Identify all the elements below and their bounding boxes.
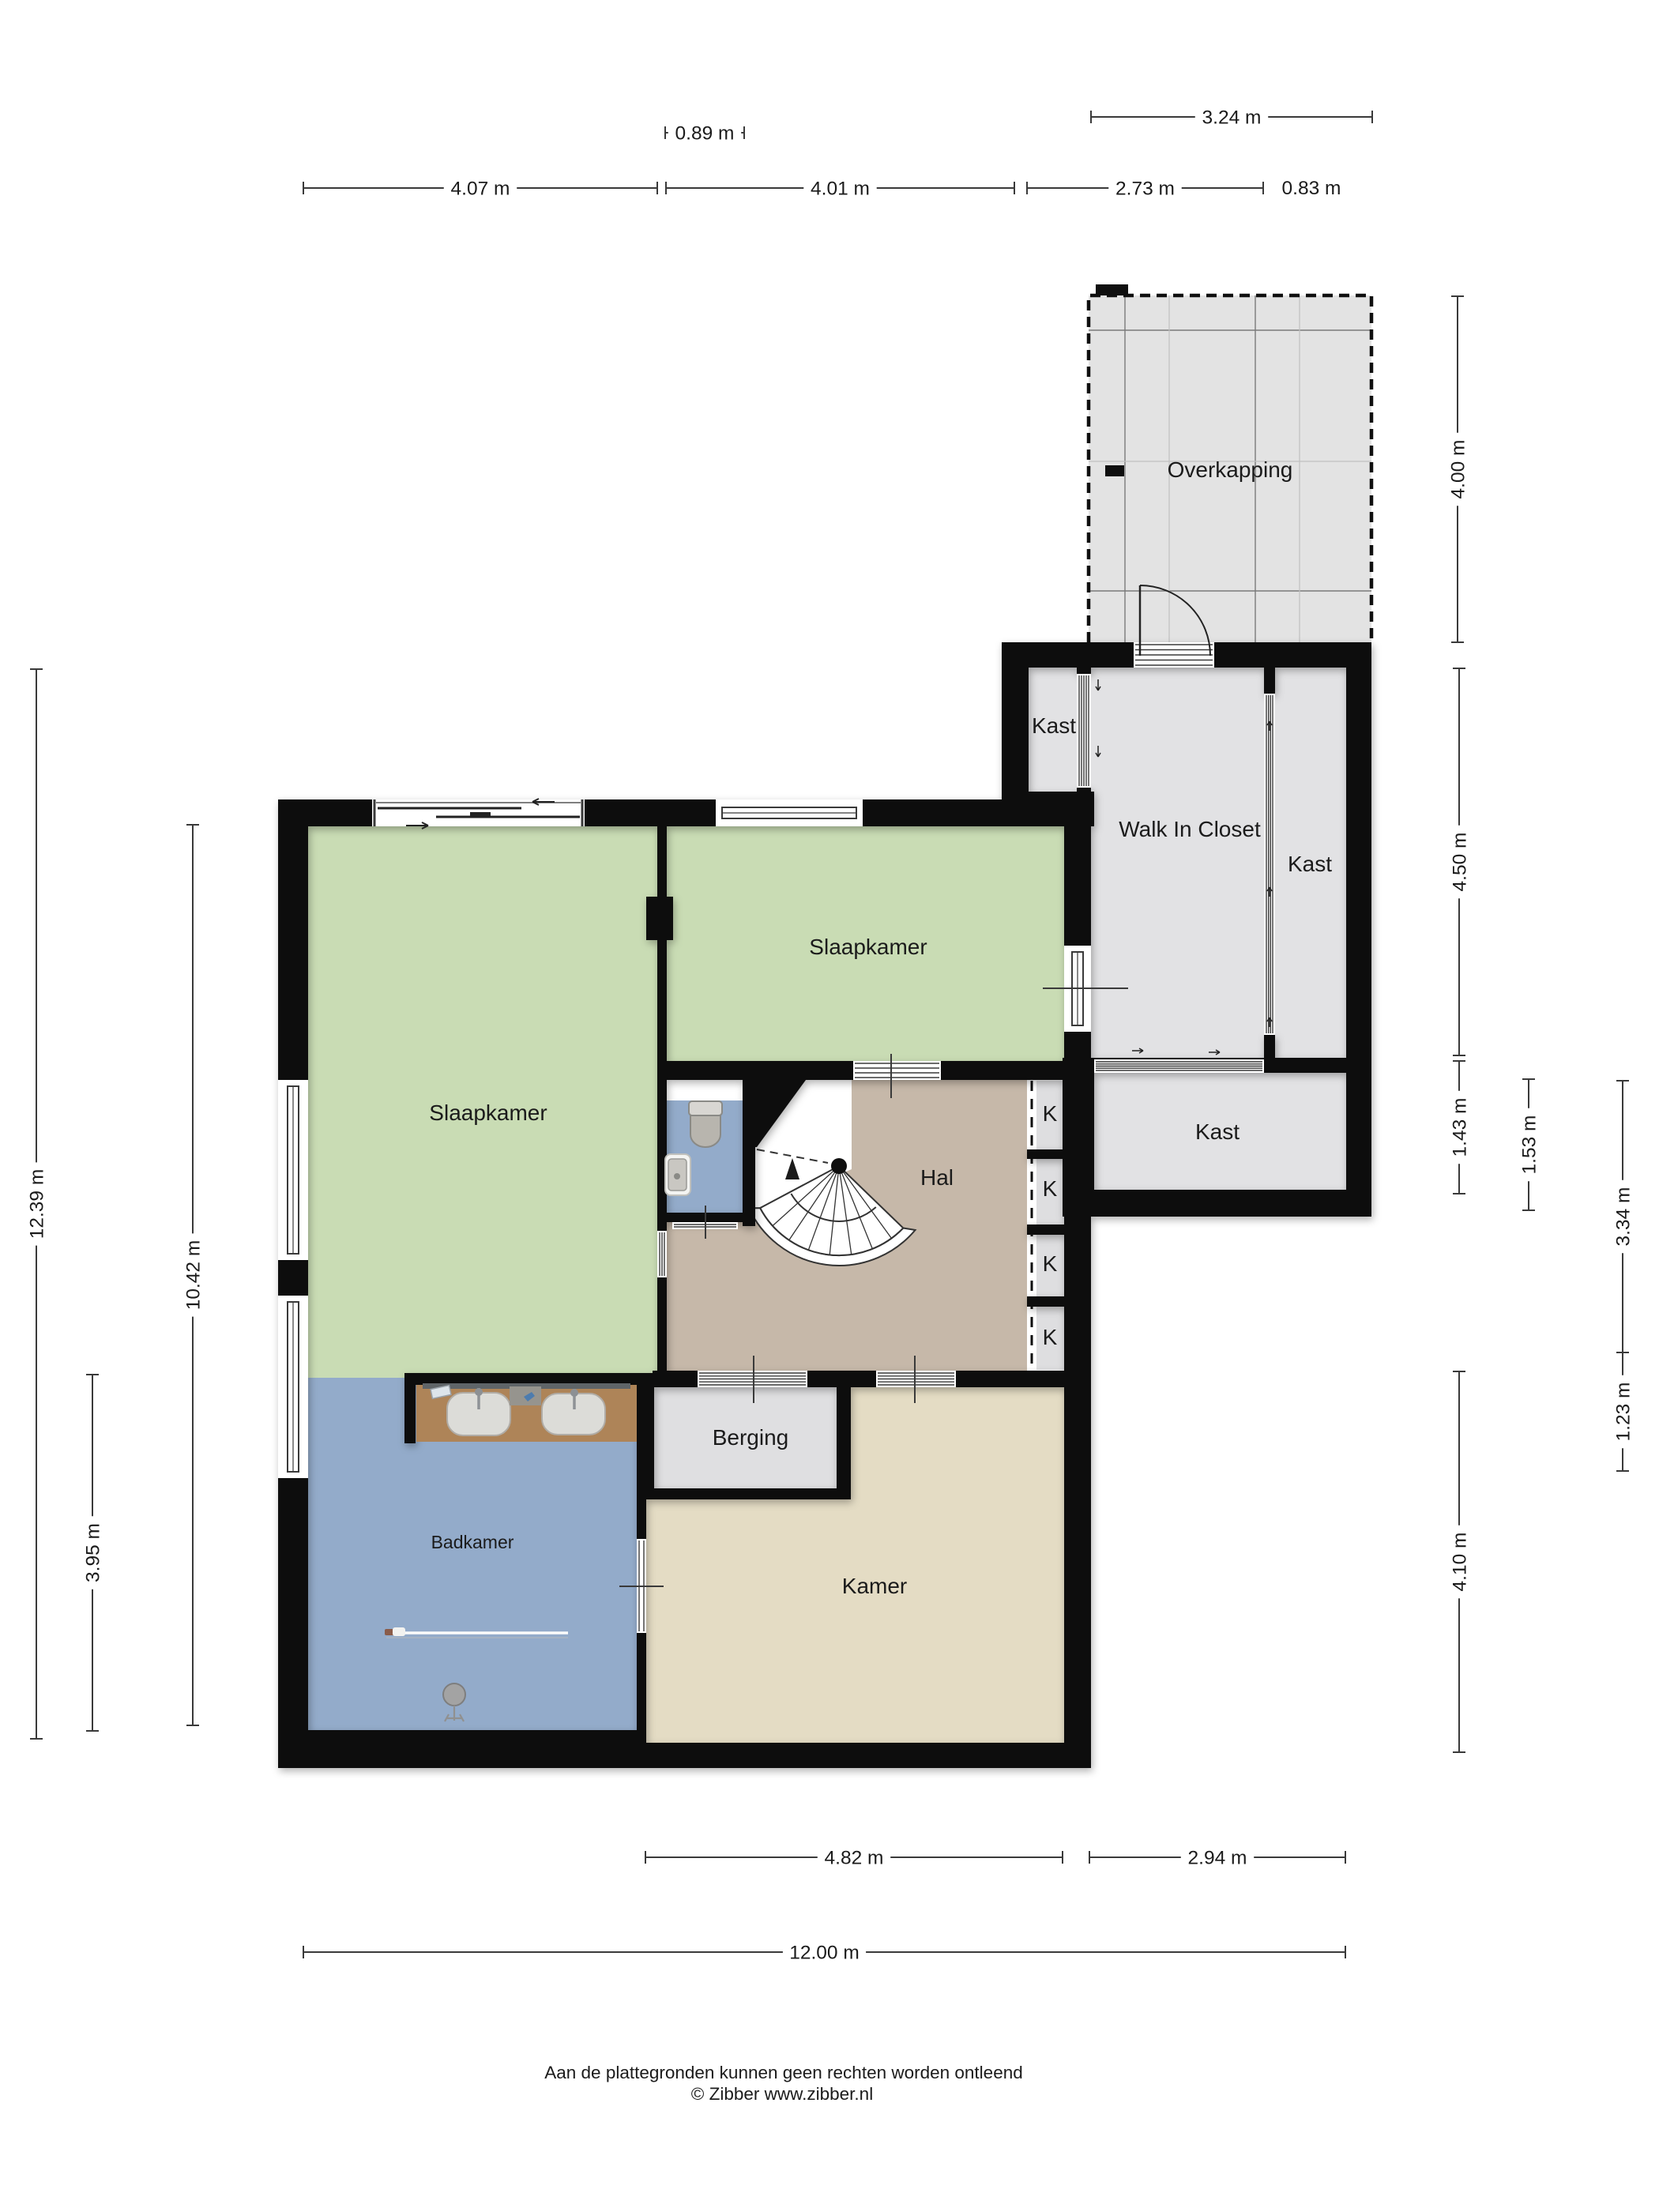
- svg-text:K: K: [1043, 1251, 1058, 1276]
- svg-text:K: K: [1043, 1325, 1058, 1349]
- svg-text:4.82 m: 4.82 m: [825, 1847, 884, 1868]
- svg-text:0.89 m: 0.89 m: [675, 122, 735, 144]
- svg-text:3.95 m: 3.95 m: [82, 1523, 103, 1582]
- svg-text:2.73 m: 2.73 m: [1115, 178, 1175, 199]
- svg-text:12.39 m: 12.39 m: [26, 1169, 47, 1240]
- svg-text:10.42 m: 10.42 m: [182, 1240, 204, 1311]
- svg-text:1.53 m: 1.53 m: [1518, 1115, 1540, 1175]
- svg-text:Kast: Kast: [1195, 1119, 1240, 1144]
- svg-text:1.23 m: 1.23 m: [1612, 1382, 1634, 1442]
- svg-text:3.24 m: 3.24 m: [1202, 107, 1262, 128]
- svg-text:K: K: [1043, 1176, 1058, 1201]
- svg-text:Kast: Kast: [1032, 713, 1076, 738]
- svg-text:Slaapkamer: Slaapkamer: [429, 1100, 547, 1125]
- svg-text:4.00 m: 4.00 m: [1447, 440, 1469, 499]
- svg-text:Walk In Closet: Walk In Closet: [1119, 817, 1261, 841]
- svg-text:Overkapping: Overkapping: [1168, 457, 1293, 482]
- svg-text:4.01 m: 4.01 m: [811, 178, 870, 199]
- svg-text:© Zibber www.zibber.nl: © Zibber www.zibber.nl: [691, 2084, 873, 2104]
- svg-text:3.34 m: 3.34 m: [1612, 1187, 1634, 1247]
- svg-text:K: K: [1043, 1101, 1058, 1126]
- svg-text:Kast: Kast: [1288, 852, 1332, 876]
- svg-text:Berging: Berging: [713, 1425, 789, 1450]
- svg-text:4.50 m: 4.50 m: [1449, 833, 1470, 892]
- svg-text:0.83 m: 0.83 m: [1282, 178, 1341, 199]
- svg-text:Slaapkamer: Slaapkamer: [809, 935, 927, 959]
- svg-text:4.10 m: 4.10 m: [1449, 1533, 1470, 1592]
- svg-text:Aan de plattegronden kunnen ge: Aan de plattegronden kunnen geen rechten…: [544, 2063, 1022, 2082]
- svg-text:Badkamer: Badkamer: [431, 1532, 514, 1552]
- svg-text:Hal: Hal: [920, 1165, 954, 1190]
- svg-text:2.94 m: 2.94 m: [1188, 1847, 1247, 1868]
- svg-text:Kamer: Kamer: [842, 1574, 907, 1598]
- svg-text:12.00 m: 12.00 m: [789, 1942, 860, 1963]
- svg-text:4.07 m: 4.07 m: [451, 178, 510, 199]
- svg-text:1.43 m: 1.43 m: [1449, 1098, 1470, 1157]
